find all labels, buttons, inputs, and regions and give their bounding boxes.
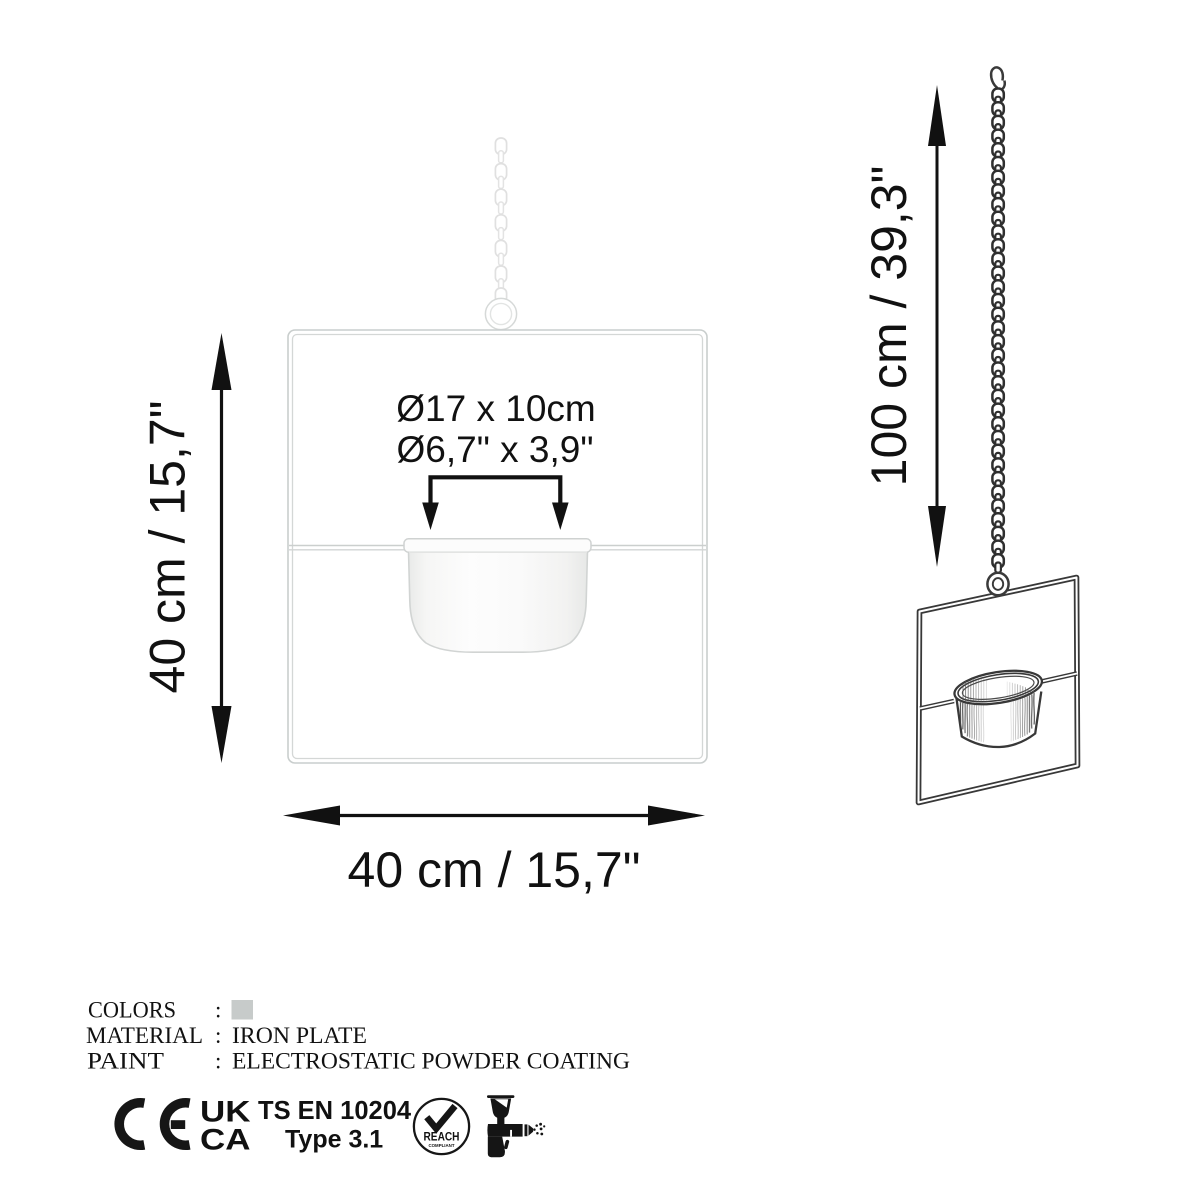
svg-text::: : [215,1049,221,1074]
svg-text:REACH: REACH [424,1130,460,1144]
svg-text:40 cm / 15,7": 40 cm / 15,7" [140,401,196,694]
svg-text:TS EN 10204: TS EN 10204 [258,1097,412,1125]
svg-text:PAINT: PAINT [87,1049,164,1075]
svg-text:IRON PLATE: IRON PLATE [232,1023,367,1049]
svg-text:Type 3.1: Type 3.1 [285,1126,383,1154]
svg-text::: : [215,1023,221,1048]
svg-text:ELECTROSTATIC POWDER COATING: ELECTROSTATIC POWDER COATING [232,1049,630,1075]
svg-text:CA: CA [200,1124,251,1157]
svg-text:40 cm / 15,7": 40 cm / 15,7" [348,842,641,898]
svg-text:100 cm / 39,3": 100 cm / 39,3" [861,166,917,487]
svg-text:COMPLIANT: COMPLIANT [429,1143,455,1148]
svg-text:Ø17 x 10cm: Ø17 x 10cm [396,388,595,429]
svg-text::: : [215,998,221,1023]
svg-text:MATERIAL: MATERIAL [86,1023,203,1049]
svg-text:COLORS: COLORS [88,998,176,1024]
svg-text:Ø6,7" x 3,9": Ø6,7" x 3,9" [397,429,594,470]
